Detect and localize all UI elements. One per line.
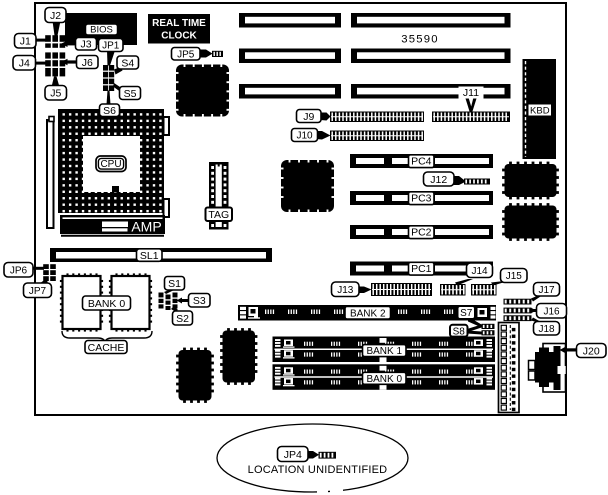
- svg-text:J6: J6: [82, 57, 93, 69]
- svg-text:S6: S6: [103, 105, 116, 117]
- svg-text:KBD: KBD: [530, 105, 550, 116]
- svg-text:BIOS: BIOS: [90, 25, 113, 36]
- svg-text:CPU: CPU: [100, 159, 121, 170]
- svg-text:JP7: JP7: [29, 286, 47, 297]
- svg-text:S2: S2: [176, 313, 189, 325]
- svg-text:TAG: TAG: [208, 209, 229, 221]
- svg-text:BANK 2: BANK 2: [350, 308, 386, 319]
- svg-text:J12: J12: [430, 174, 447, 186]
- svg-text:J10: J10: [296, 131, 313, 142]
- svg-text:S1: S1: [168, 278, 181, 290]
- svg-text:S3: S3: [193, 295, 206, 307]
- svg-text:J15: J15: [506, 271, 523, 282]
- svg-text:S7: S7: [460, 308, 473, 319]
- svg-text:J3: J3: [80, 39, 91, 51]
- svg-text:J20: J20: [583, 345, 600, 357]
- svg-text:J14: J14: [471, 266, 488, 277]
- svg-text:PC3: PC3: [411, 193, 432, 205]
- svg-text:CACHE: CACHE: [88, 342, 125, 354]
- svg-text:J2: J2: [50, 10, 61, 22]
- svg-text:PC1: PC1: [411, 263, 432, 275]
- svg-text:JP4: JP4: [284, 449, 302, 461]
- svg-text:J9: J9: [303, 111, 314, 123]
- svg-text:J1: J1: [20, 36, 31, 48]
- svg-text:J18: J18: [538, 324, 555, 335]
- svg-text:BANK 0: BANK 0: [366, 374, 402, 385]
- svg-text:J11: J11: [463, 87, 479, 99]
- svg-text:PC2: PC2: [411, 227, 432, 239]
- svg-text:REAL TIME: REAL TIME: [152, 18, 206, 29]
- svg-text:CLOCK: CLOCK: [161, 31, 197, 42]
- svg-text:AMP: AMP: [131, 219, 161, 235]
- svg-text:BANK 1: BANK 1: [366, 346, 402, 357]
- svg-text:S4: S4: [121, 57, 134, 69]
- svg-text:PC4: PC4: [411, 156, 432, 168]
- svg-text:BANK 0: BANK 0: [88, 298, 126, 310]
- svg-text:JP1: JP1: [102, 41, 120, 52]
- svg-text:JP6: JP6: [10, 265, 28, 276]
- svg-text:LOCATION UNIDENTIFIED: LOCATION UNIDENTIFIED: [248, 464, 388, 476]
- svg-text:J16: J16: [543, 306, 560, 317]
- svg-text:J13: J13: [337, 285, 354, 296]
- svg-text:J17: J17: [538, 285, 555, 296]
- svg-text:JP5: JP5: [177, 49, 195, 60]
- svg-text:SL1: SL1: [140, 250, 159, 262]
- svg-text:S5: S5: [124, 88, 137, 100]
- svg-text:S8: S8: [453, 326, 466, 337]
- svg-text:J4: J4: [19, 58, 30, 70]
- svg-text:35590: 35590: [401, 34, 438, 46]
- svg-text:J5: J5: [50, 88, 61, 100]
